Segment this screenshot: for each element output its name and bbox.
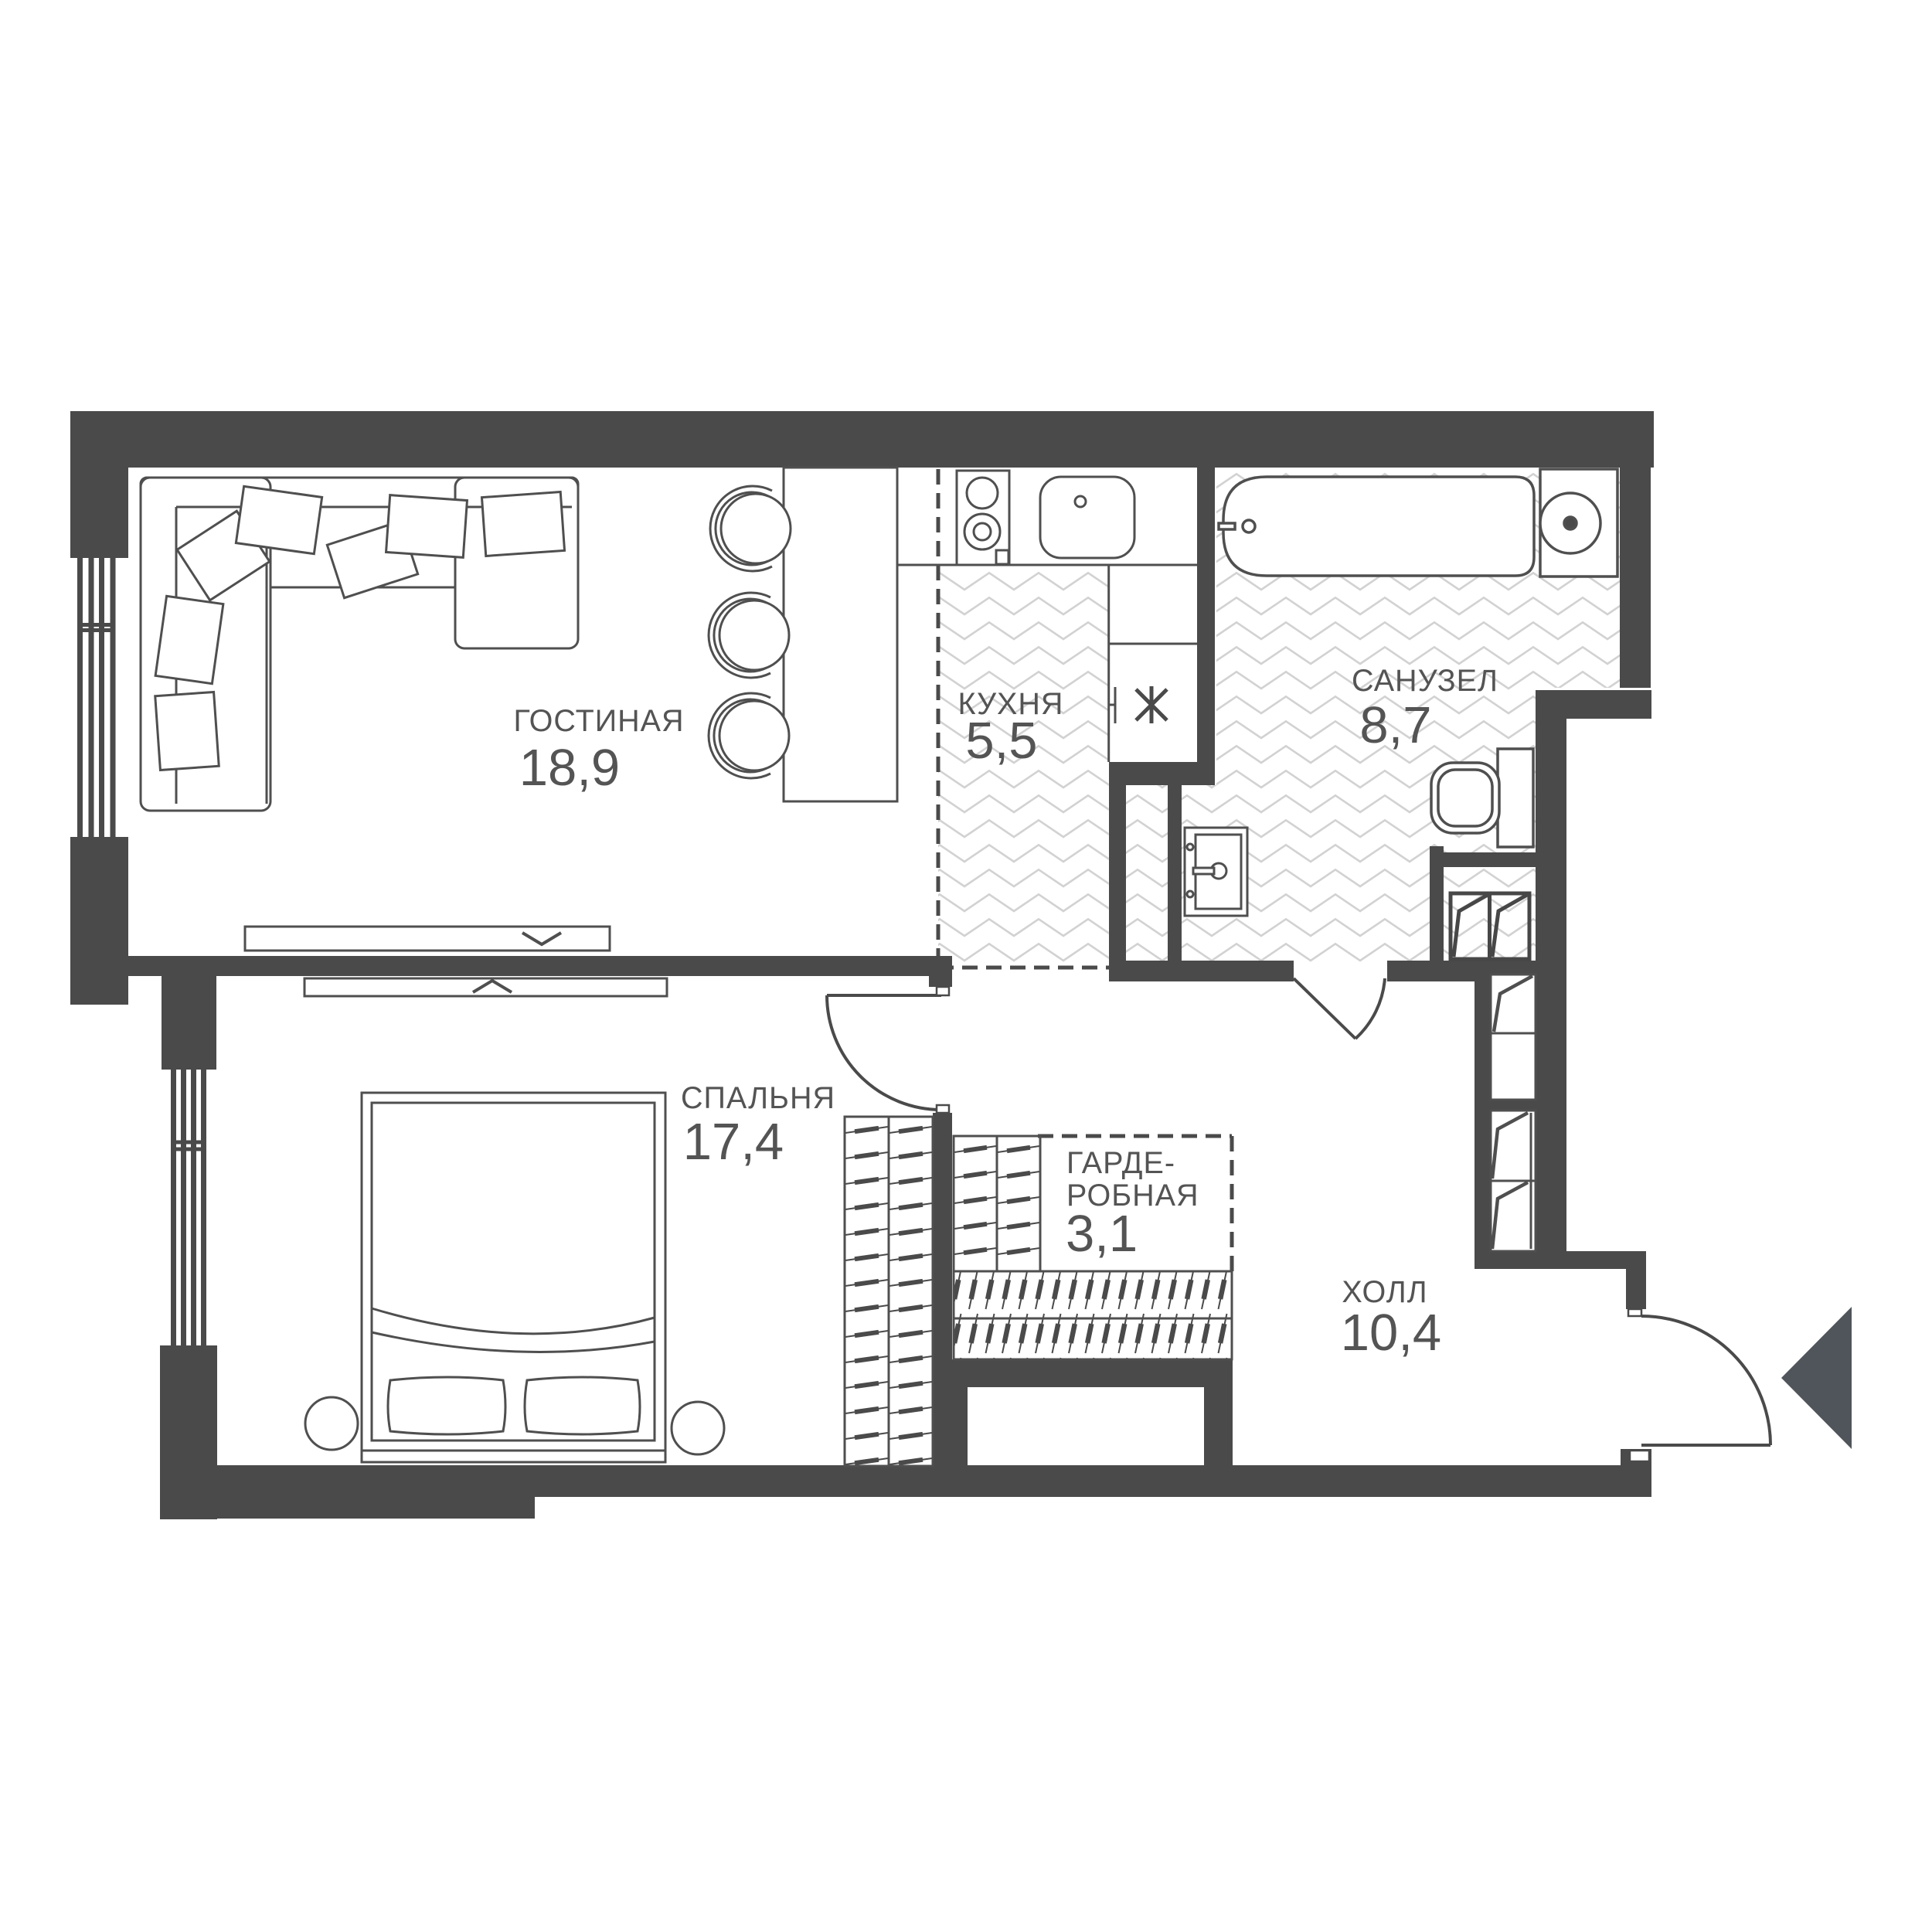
svg-text:8,7: 8,7 <box>1359 696 1431 754</box>
svg-text:3,1: 3,1 <box>1066 1205 1138 1263</box>
svg-text:САНУЗЕЛ: САНУЗЕЛ <box>1352 664 1498 698</box>
svg-text:18,9: 18,9 <box>519 739 620 797</box>
svg-text:10,4: 10,4 <box>1341 1304 1441 1362</box>
svg-text:17,4: 17,4 <box>683 1113 784 1171</box>
svg-text:5,5: 5,5 <box>965 712 1037 770</box>
svg-text:ГАРДЕ-: ГАРДЕ- <box>1066 1146 1175 1180</box>
svg-text:СПАЛЬНЯ: СПАЛЬНЯ <box>681 1081 835 1115</box>
svg-text:ГОСТИНАЯ: ГОСТИНАЯ <box>513 704 684 738</box>
